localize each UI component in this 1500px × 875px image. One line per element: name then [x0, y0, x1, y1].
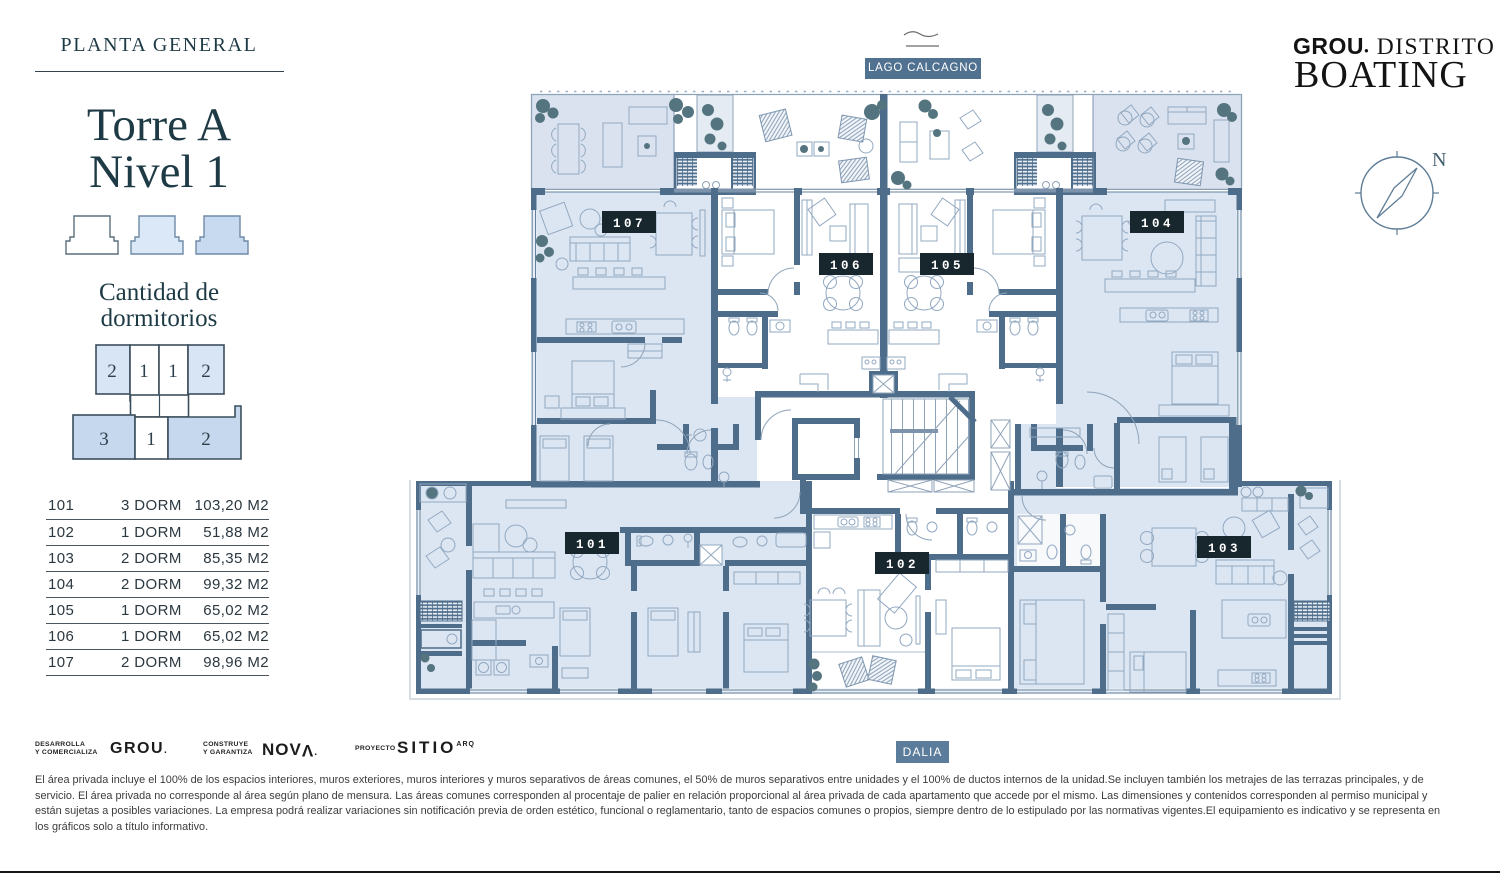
svg-text:101: 101 — [576, 538, 609, 552]
svg-text:102: 102 — [886, 558, 919, 572]
svg-text:107: 107 — [613, 217, 646, 231]
svg-text:105: 105 — [931, 259, 964, 273]
svg-text:106: 106 — [830, 259, 863, 273]
svg-text:104: 104 — [1141, 217, 1174, 231]
svg-text:103: 103 — [1208, 542, 1241, 556]
